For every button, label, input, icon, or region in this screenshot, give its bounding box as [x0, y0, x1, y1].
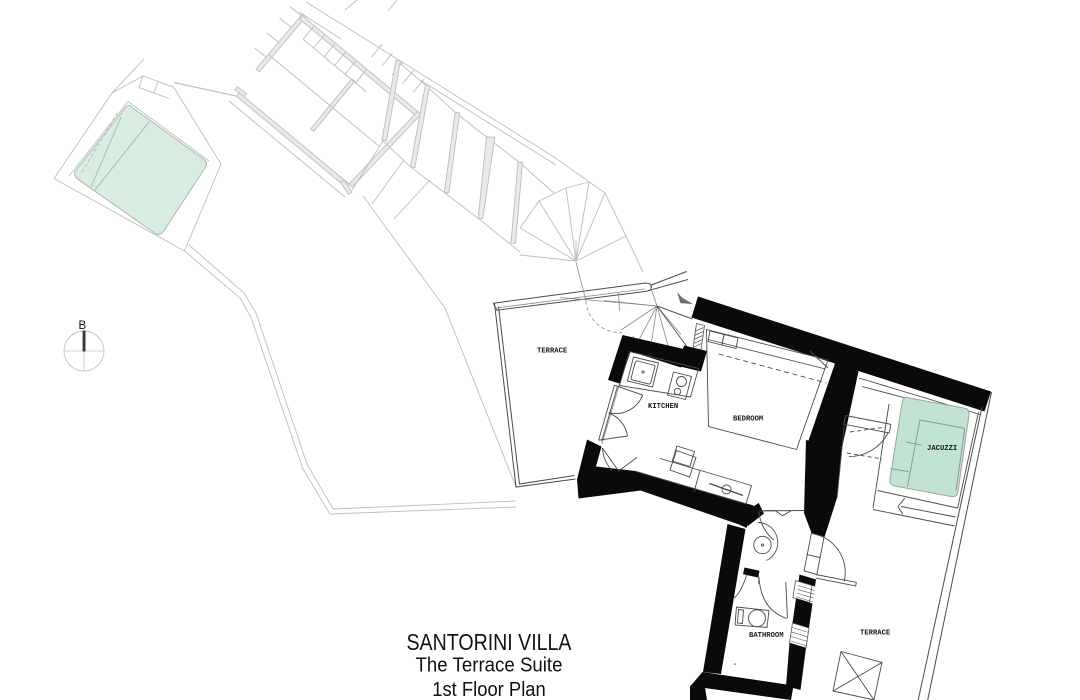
svg-text:BATHROOM: BATHROOM	[749, 632, 784, 640]
svg-text:KITCHEN: KITCHEN	[648, 403, 678, 411]
svg-text:SANTORINI VILLA: SANTORINI VILLA	[407, 629, 573, 655]
svg-text:TERRACE: TERRACE	[537, 348, 568, 356]
svg-text:1st Floor Plan: 1st Floor Plan	[432, 678, 546, 700]
svg-text:The Terrace Suite: The Terrace Suite	[416, 654, 563, 677]
svg-text:B: B	[79, 320, 87, 332]
svg-text:TERRACE: TERRACE	[860, 630, 891, 638]
svg-text:JACUZZI: JACUZZI	[927, 445, 957, 453]
svg-text:BEDROOM: BEDROOM	[733, 416, 763, 424]
